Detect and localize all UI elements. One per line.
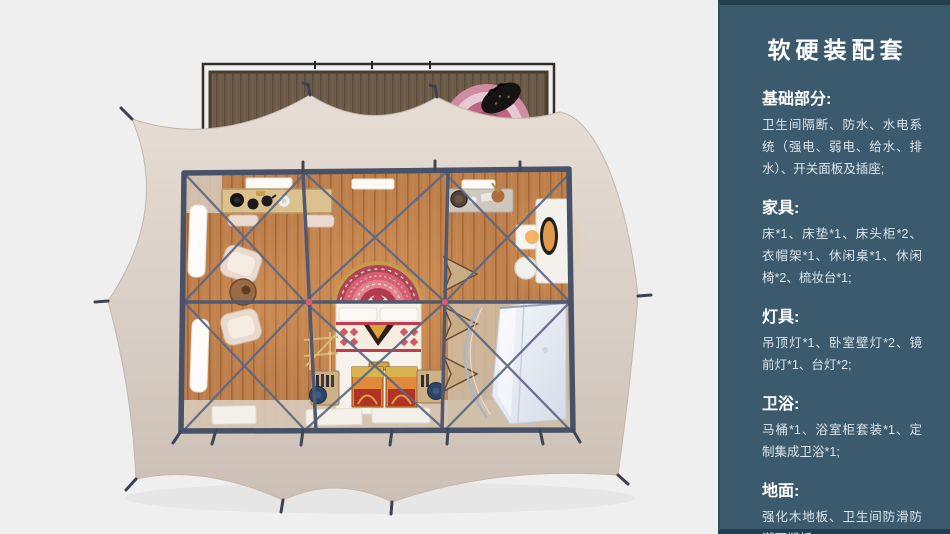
section-body: 卫生间隔断、防水、水电系统（强电、弱电、给水、排水）、开关面板及插座;	[762, 114, 922, 180]
section-heading: 基础部分:	[762, 90, 922, 110]
section-body: 床*1、床垫*1、床头柜*2、衣帽架*1、休闲桌*1、休闲椅*2、梳妆台*1;	[762, 223, 922, 289]
section-body: 吊顶灯*1、卧室壁灯*2、镜前灯*1、台灯*2;	[762, 332, 922, 376]
frame-joint	[442, 299, 448, 305]
tent-floorplan-render	[0, 0, 718, 534]
section-bathroom: 卫浴: 马桶*1、浴室柜套装*1、定制集成卫浴*1;	[762, 395, 922, 463]
stool	[304, 215, 334, 227]
sidebar-title: 软硬装配套	[720, 31, 950, 65]
section-basics: 基础部分: 卫生间隔断、防水、水电系统（强电、弱电、给水、排水）、开关面板及插座…	[762, 90, 922, 180]
section-heading: 卫浴:	[762, 395, 922, 415]
spec-sidebar: 软硬装配套 基础部分: 卫生间隔断、防水、水电系统（强电、弱电、给水、排水）、开…	[718, 0, 950, 534]
section-furniture: 家具: 床*1、床垫*1、床头柜*2、衣帽架*1、休闲桌*1、休闲椅*2、梳妆台…	[762, 199, 922, 289]
pillow	[380, 308, 418, 321]
section-body: 强化木地板、卫生间防滑防潮石塑板;	[762, 506, 922, 534]
pillow	[339, 308, 377, 321]
section-lighting: 灯具: 吊顶灯*1、卧室壁灯*2、镜前灯*1、台灯*2;	[762, 308, 922, 376]
section-flooring: 地面: 强化木地板、卫生间防滑防潮石塑板;	[762, 482, 922, 534]
spec-sections: 基础部分: 卫生间隔断、防水、水电系统（强电、弱电、给水、排水）、开关面板及插座…	[720, 90, 950, 534]
vanity-stool	[515, 257, 537, 279]
section-body: 马桶*1、浴室柜套装*1、定制集成卫浴*1;	[762, 419, 922, 463]
section-heading: 地面:	[762, 482, 922, 502]
section-heading: 家具:	[762, 199, 922, 219]
section-heading: 灯具:	[762, 308, 922, 328]
page: 软硬装配套 基础部分: 卫生间隔断、防水、水电系统（强电、弱电、给水、排水）、开…	[0, 0, 950, 534]
frame-joint	[306, 299, 312, 305]
